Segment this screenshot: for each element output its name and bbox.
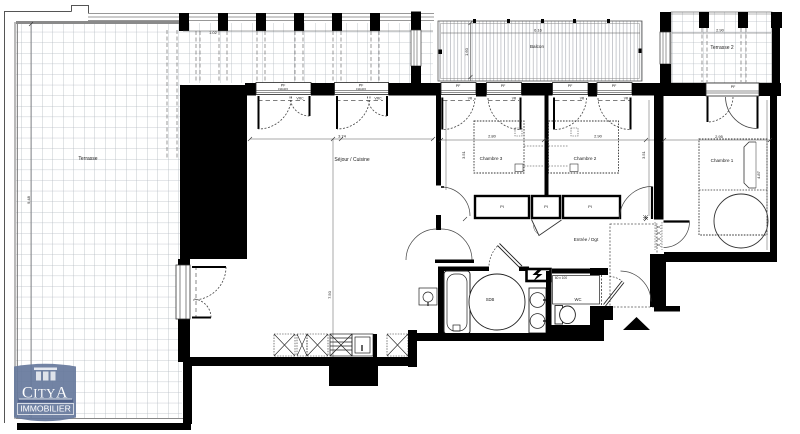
svg-text:2.90: 2.90 (716, 28, 725, 33)
svg-text:3.51: 3.51 (461, 150, 466, 159)
svg-text:SDB: SDB (486, 297, 495, 302)
svg-text:3.51: 3.51 (641, 150, 646, 159)
svg-text:Chambre 1: Chambre 1 (711, 158, 734, 163)
svg-text:VRC: VRC (374, 96, 382, 100)
svg-text:PI: PI (544, 204, 548, 209)
svg-text:60 x 100: 60 x 100 (555, 276, 567, 280)
svg-text:VRC: VRC (296, 96, 304, 100)
svg-text:Séjour / Cuisine: Séjour / Cuisine (334, 157, 370, 163)
svg-text:Terrasse: Terrasse (78, 156, 97, 162)
svg-text:9.48: 9.48 (26, 195, 31, 204)
svg-text:Balcon: Balcon (530, 44, 544, 49)
svg-text:190x215: 190x215 (356, 87, 367, 91)
svg-text:IMMOBILIER: IMMOBILIER (20, 404, 71, 414)
svg-text:PF: PF (456, 84, 461, 88)
svg-text:4.87: 4.87 (756, 170, 761, 179)
svg-text:PI: PI (588, 204, 592, 209)
svg-text:6.16: 6.16 (534, 28, 543, 33)
svg-text:PF: PF (568, 84, 573, 88)
svg-text:PI: PI (500, 204, 504, 209)
svg-text:2.90: 2.90 (594, 134, 603, 139)
svg-text:Terrasse 2: Terrasse 2 (710, 45, 734, 51)
svg-text:PF: PF (612, 84, 617, 88)
svg-text:PF: PF (731, 85, 736, 89)
svg-text:Entrée / Dgt: Entrée / Dgt (574, 237, 599, 242)
svg-text:Chambre 3: Chambre 3 (480, 156, 503, 161)
svg-text:190x215: 190x215 (278, 87, 289, 91)
svg-text:2.95: 2.95 (715, 134, 724, 139)
svg-text:VR: VR (512, 96, 517, 100)
svg-text:VR: VR (468, 96, 473, 100)
svg-text:2.80: 2.80 (488, 134, 497, 139)
svg-text:Chambre 2: Chambre 2 (574, 156, 597, 161)
svg-text:1.60: 1.60 (464, 47, 469, 56)
svg-text:7.50: 7.50 (327, 290, 332, 299)
svg-text:WC: WC (575, 297, 582, 302)
svg-text:VR: VR (624, 96, 629, 100)
svg-text:VR: VR (580, 96, 585, 100)
svg-text:PF: PF (501, 84, 506, 88)
